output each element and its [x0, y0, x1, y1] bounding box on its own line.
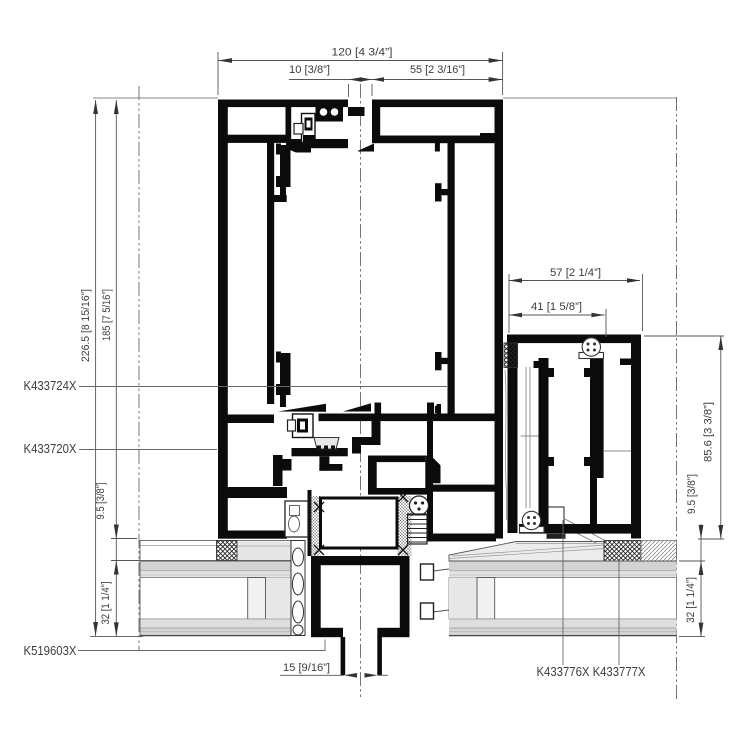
svg-text:K519603X: K519603X — [24, 643, 77, 658]
svg-text:226.5 [8 15/16”]: 226.5 [8 15/16”] — [80, 289, 92, 362]
svg-text:85.6 [3 3/8”]: 85.6 [3 3/8”] — [703, 402, 715, 462]
svg-text:K433724X: K433724X — [24, 378, 77, 393]
svg-text:41 [1 5/8”]: 41 [1 5/8”] — [531, 301, 582, 313]
svg-text:32 [1 1/4”]: 32 [1 1/4”] — [100, 582, 112, 625]
svg-text:57 [2 1/4”]: 57 [2 1/4”] — [550, 267, 601, 279]
svg-text:K433720X: K433720X — [24, 441, 77, 456]
svg-text:120 [4 3/4”]: 120 [4 3/4”] — [332, 47, 393, 59]
svg-text:32 [1 1/4”]: 32 [1 1/4”] — [685, 577, 697, 623]
svg-text:K433776X K433777X: K433776X K433777X — [537, 664, 646, 679]
svg-text:15 [9/16”]: 15 [9/16”] — [283, 662, 330, 674]
svg-text:9.5 [3/8”]: 9.5 [3/8”] — [95, 483, 107, 520]
svg-text:55 [2 3/16”]: 55 [2 3/16”] — [410, 64, 465, 76]
svg-text:10 [3/8”]: 10 [3/8”] — [289, 64, 330, 76]
svg-text:9.5 [3/8”]: 9.5 [3/8”] — [686, 474, 698, 514]
svg-text:185 [7 5/16”]: 185 [7 5/16”] — [101, 289, 113, 341]
